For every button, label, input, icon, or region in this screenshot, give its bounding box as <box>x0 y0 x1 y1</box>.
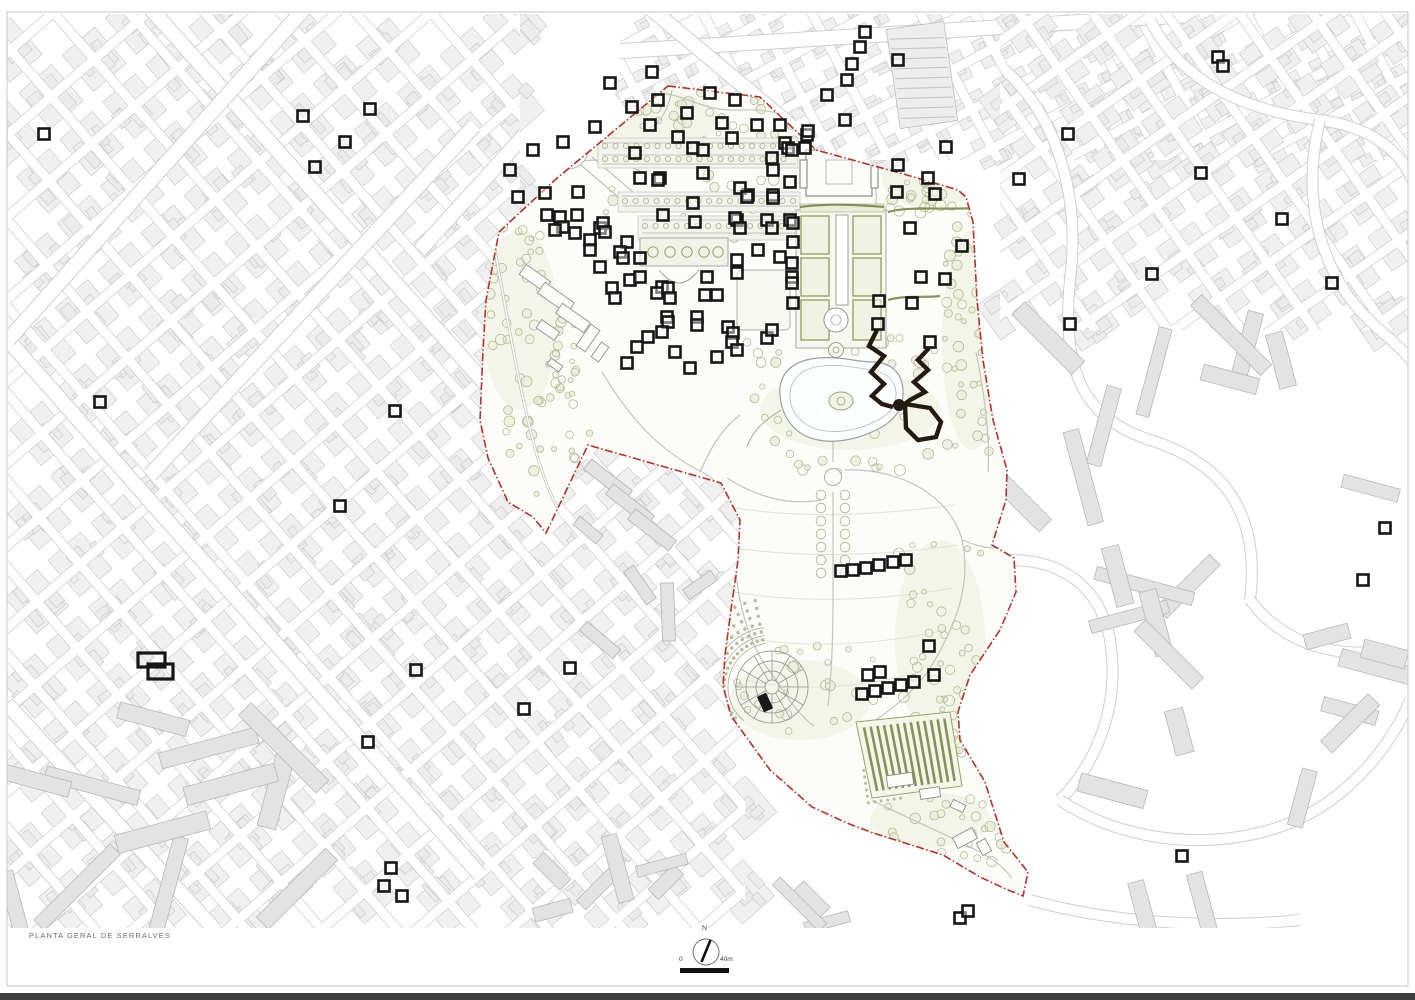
scale-bar-rule <box>680 968 729 973</box>
scale-end-label: 40m <box>720 956 733 963</box>
scale-bar: 0 40m <box>679 956 739 978</box>
plan-sheet: PLANTA GERAL DE SERRALVES N 0 40m <box>0 0 1415 1000</box>
site-plan-map <box>0 0 1415 1000</box>
scale-zero-label: 0 <box>679 956 683 963</box>
plan-title: PLANTA GERAL DE SERRALVES <box>29 931 171 940</box>
north-label: N <box>702 925 707 932</box>
